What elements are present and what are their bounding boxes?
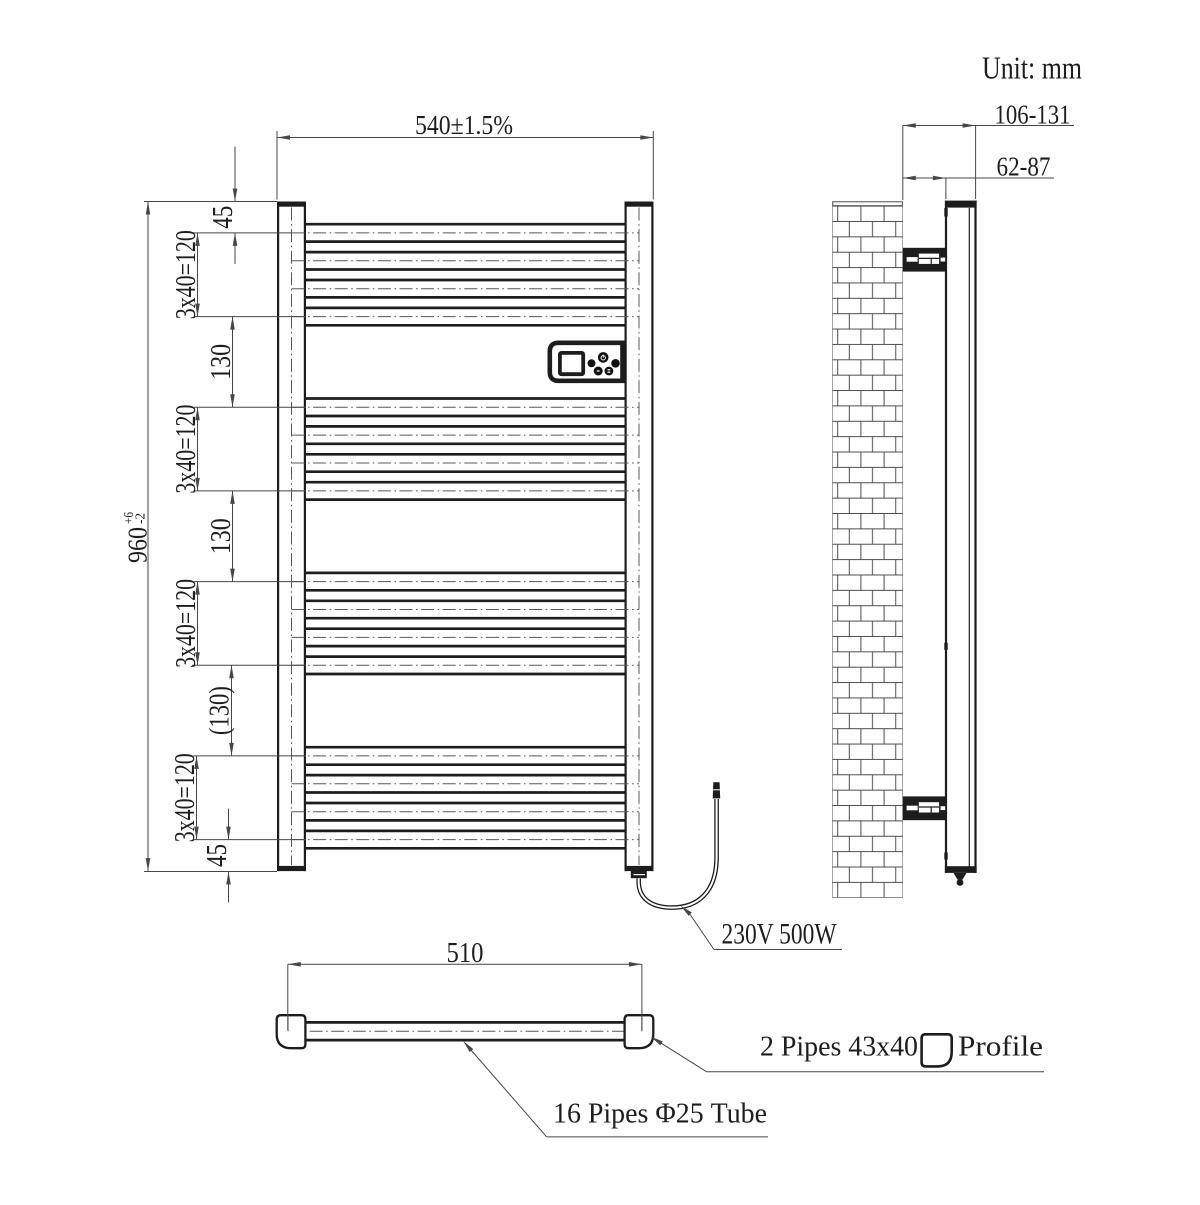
svg-text:540±1.5%: 540±1.5% bbox=[415, 110, 513, 140]
svg-text:3x40=120: 3x40=120 bbox=[171, 405, 202, 494]
svg-text:130: 130 bbox=[206, 344, 237, 380]
svg-text:130: 130 bbox=[206, 518, 237, 554]
svg-text:3x40=120: 3x40=120 bbox=[170, 753, 201, 842]
svg-text:230V 500W: 230V 500W bbox=[722, 918, 838, 951]
svg-text:3x40=120: 3x40=120 bbox=[171, 579, 202, 668]
svg-text:62-87: 62-87 bbox=[997, 152, 1051, 182]
svg-text:3x40=120: 3x40=120 bbox=[171, 230, 202, 319]
svg-text:510: 510 bbox=[447, 937, 484, 969]
svg-text:Profile: Profile bbox=[958, 1032, 1043, 1063]
svg-text:(130): (130) bbox=[204, 686, 235, 735]
svg-text:Unit: mm: Unit: mm bbox=[982, 50, 1082, 86]
svg-text:2 Pipes 43x40: 2 Pipes 43x40 bbox=[760, 1032, 918, 1063]
svg-text:45: 45 bbox=[208, 206, 239, 229]
svg-text:-2: -2 bbox=[134, 513, 149, 524]
svg-text:45: 45 bbox=[202, 844, 233, 867]
svg-text:106-131: 106-131 bbox=[995, 100, 1071, 130]
svg-text:960: 960 bbox=[123, 527, 153, 563]
svg-text:16 Pipes Φ25 Tube: 16 Pipes Φ25 Tube bbox=[553, 1099, 767, 1130]
